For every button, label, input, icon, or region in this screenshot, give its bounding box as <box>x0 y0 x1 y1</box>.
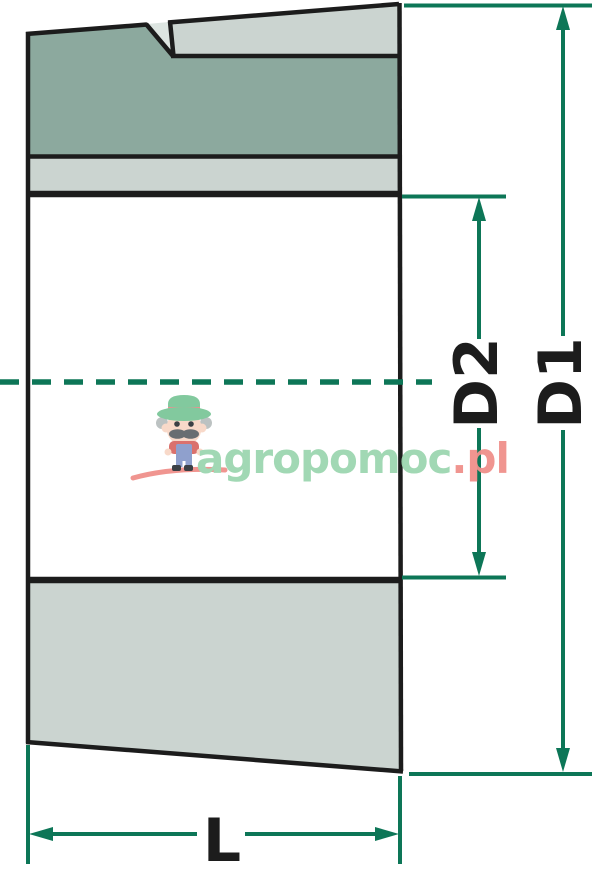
right-edge <box>400 3 402 771</box>
d2-arrow-up-icon <box>472 197 486 221</box>
eye-left <box>174 421 180 427</box>
upper-wall-inner-band <box>28 156 400 193</box>
lower-wall-section <box>28 580 401 770</box>
watermark-wordmark: agropomoc.pl <box>196 434 509 483</box>
hand-left <box>165 449 172 456</box>
boot-left <box>172 465 181 471</box>
d2-arrow-down-icon <box>472 552 486 576</box>
bushing-diagram: D2 D1 L <box>0 0 600 876</box>
length-label: L <box>203 806 241 876</box>
d1-arrow-down-icon <box>556 748 570 772</box>
d2-label: D2 <box>442 337 512 429</box>
eye-right <box>188 421 194 427</box>
boot-right <box>184 465 193 471</box>
d1-label: D1 <box>526 337 596 429</box>
d1-arrow-up-icon <box>556 6 570 30</box>
l-arrow-left-icon <box>29 827 53 841</box>
watermark-tld-text: .pl <box>451 434 508 483</box>
hat-brim <box>157 407 211 421</box>
watermark-brand-text: agropomoc <box>196 434 451 483</box>
bushing-body <box>28 4 401 770</box>
drawing-canvas: D2 D1 L <box>0 0 600 876</box>
l-arrow-right-icon <box>375 827 399 841</box>
